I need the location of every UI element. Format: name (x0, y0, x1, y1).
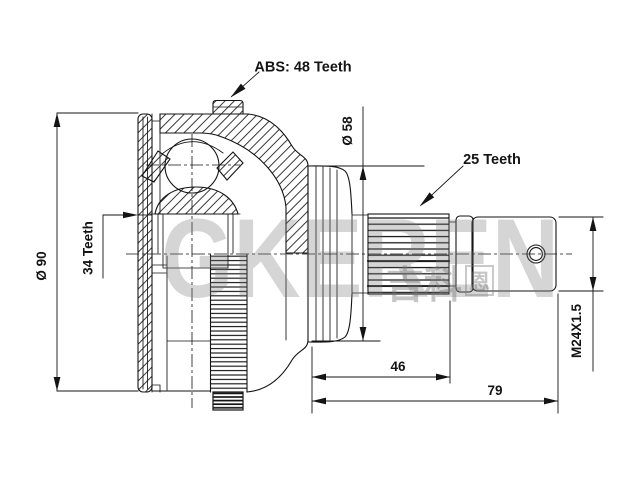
dia58-arrow-top (360, 166, 367, 180)
dia90-arrow-top (54, 113, 61, 127)
cage-wedge-right (217, 152, 243, 180)
m24-label: M24X1.5 (569, 303, 584, 358)
dia58-arrow-bottom (360, 327, 367, 341)
m24-arrow-bottom (590, 277, 597, 291)
dim46-arrow-left (312, 374, 326, 381)
watermark-cjk-boxed: 恩 (469, 271, 490, 294)
dia90-arrow-bottom (54, 377, 61, 391)
dim79-arrow-right (544, 398, 558, 405)
teeth34-arrow (123, 212, 138, 218)
watermark-cjk: 吉科 (386, 265, 462, 307)
abs-label: ABS: 48 Teeth (254, 60, 351, 76)
watermark: GKEREN 吉科 恩 (161, 196, 559, 321)
dim79-label: 79 (487, 383, 502, 398)
teeth34-label: 34 Teeth (81, 221, 96, 275)
dimension-m24: M24X1.5 (559, 217, 603, 371)
dim79-arrow-left (312, 398, 326, 405)
technical-drawing-canvas: Ø 90 34 Teeth ABS: 48 Teeth Ø 58 25 Teet… (0, 0, 640, 480)
dim46-label: 46 (390, 359, 406, 374)
abs-ring-teeth-tips (213, 392, 243, 410)
m24-arrow-top (590, 217, 597, 231)
teeth34-leader (103, 215, 124, 278)
cv-joint-technical-drawing: Ø 90 34 Teeth ABS: 48 Teeth Ø 58 25 Teet… (0, 0, 640, 480)
leader-34-teeth: 34 Teeth (81, 212, 139, 278)
watermark-brand: GKEREN (161, 196, 559, 321)
dia90-lines (57, 113, 138, 391)
dim46-arrow-right (436, 374, 450, 381)
dia58-label: Ø 58 (340, 116, 355, 146)
leader-abs-48-teeth: ABS: 48 Teeth (231, 60, 352, 98)
teeth25-label: 25 Teeth (463, 152, 521, 168)
dia90-label: Ø 90 (34, 251, 49, 280)
boot-flange (138, 114, 152, 392)
